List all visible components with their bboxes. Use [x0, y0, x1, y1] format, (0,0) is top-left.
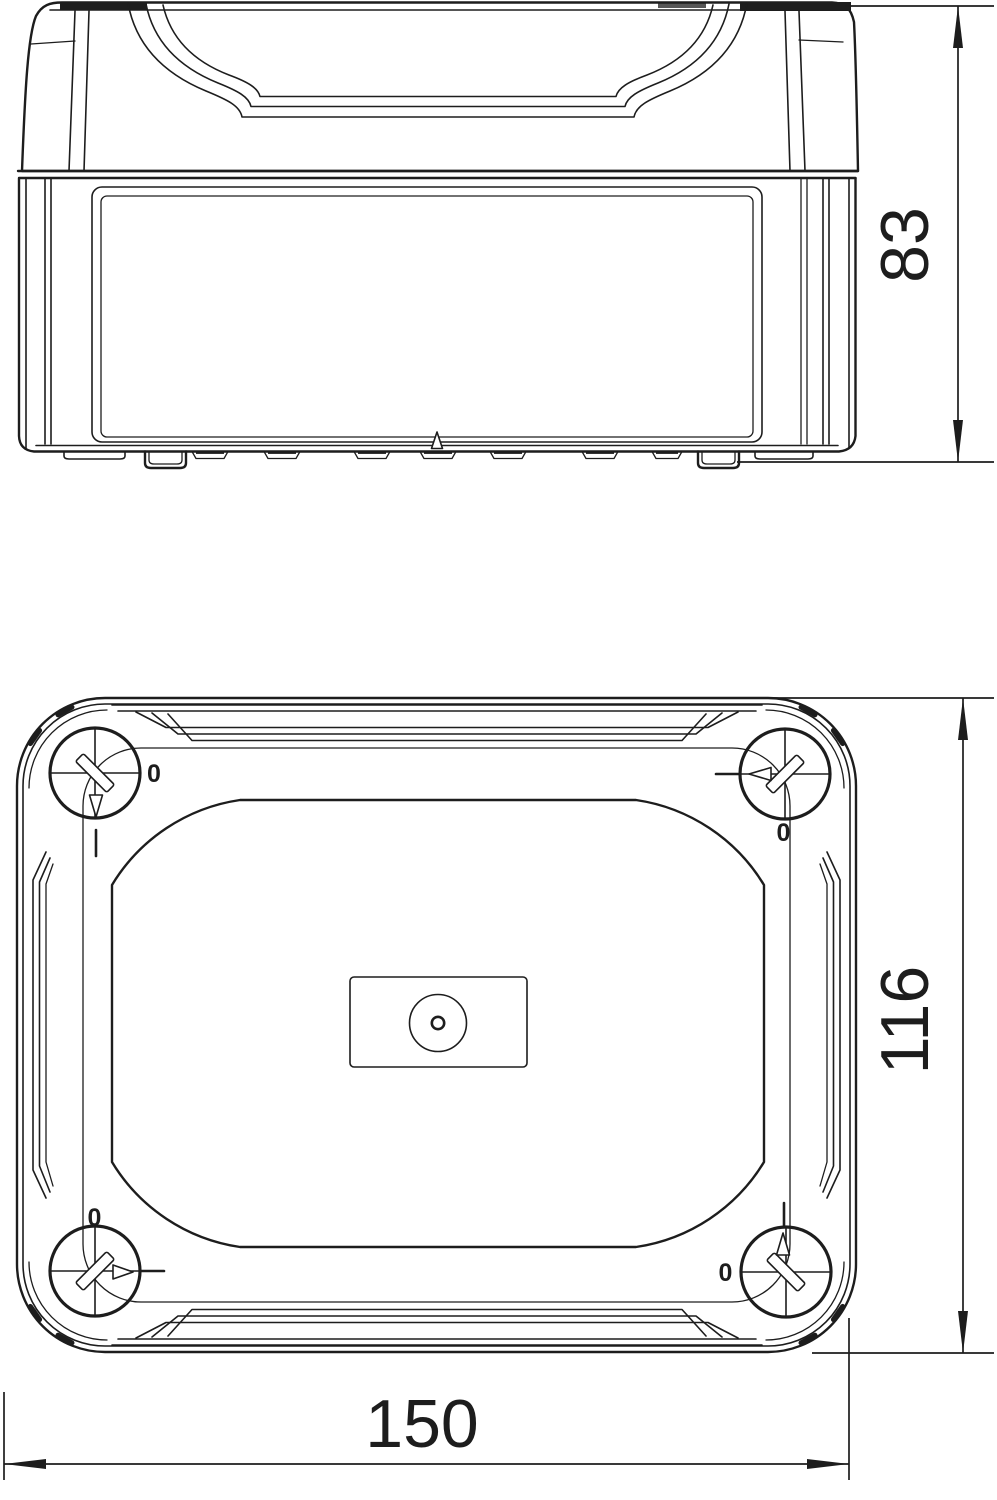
- notch-bar: [358, 452, 386, 454]
- drawing-sheet: 83: [0, 0, 997, 1500]
- knockout-pilot-hole: [432, 1017, 444, 1029]
- zero-mark: 0: [719, 1259, 733, 1287]
- notch-bar: [424, 452, 452, 454]
- arrowhead-right: [807, 1459, 849, 1469]
- arrowhead-down: [958, 1311, 968, 1353]
- dimension-116-label: 116: [867, 966, 943, 1074]
- body-outline: [19, 178, 856, 452]
- arrowhead-up: [953, 6, 963, 48]
- zero-mark: 0: [147, 760, 161, 788]
- arrowhead-down: [953, 420, 963, 462]
- dimension-83-label: 83: [867, 207, 943, 283]
- notch-bar: [268, 452, 296, 454]
- notch-bar: [586, 452, 614, 454]
- foot-right: [698, 452, 739, 469]
- notch-bar: [494, 452, 522, 454]
- lid-top-dark-band-left: [60, 2, 147, 10]
- zero-mark: 0: [777, 819, 791, 847]
- notch-bar: [656, 452, 678, 454]
- zero-mark: 0: [88, 1204, 102, 1232]
- lid-outline: [22, 3, 858, 172]
- drawing-canvas: 83: [0, 0, 997, 1500]
- dimension-150-label: 150: [365, 1386, 478, 1462]
- side-view: [18, 2, 858, 468]
- arrowhead-up: [958, 698, 968, 740]
- arrowhead-left: [4, 1459, 46, 1469]
- lid-top-dark-band-mid: [658, 3, 706, 8]
- plan-view: 0 0 0 0: [17, 698, 856, 1352]
- lid-top-dark-band-right: [740, 2, 851, 11]
- foot-left: [145, 452, 186, 469]
- notch-bar: [196, 452, 224, 454]
